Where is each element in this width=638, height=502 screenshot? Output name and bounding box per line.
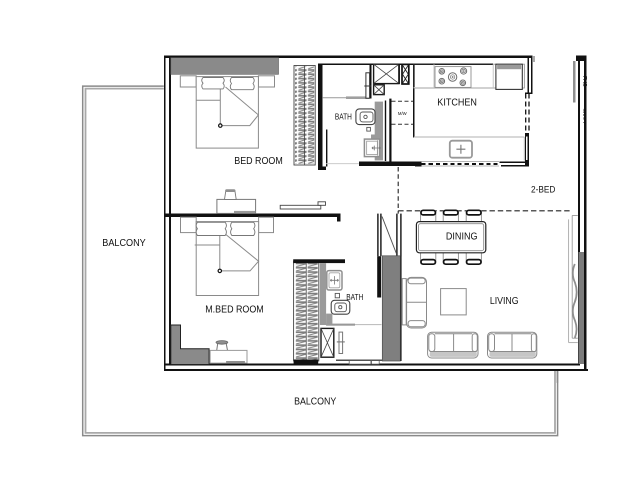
svg-text:BALCONY: BALCONY bbox=[294, 397, 337, 408]
svg-text:M/W: M/W bbox=[398, 111, 407, 116]
svg-text:M.BED ROOM: M.BED ROOM bbox=[205, 303, 264, 315]
svg-text:SHAFT: SHAFT bbox=[581, 109, 587, 125]
svg-text:BALCONY: BALCONY bbox=[102, 238, 146, 249]
svg-text:BED ROOM: BED ROOM bbox=[234, 155, 283, 167]
svg-text:LIVING: LIVING bbox=[490, 296, 519, 307]
svg-text:DINING: DINING bbox=[446, 232, 478, 243]
svg-text:BATH: BATH bbox=[335, 113, 352, 122]
svg-text:2-BED: 2-BED bbox=[531, 185, 555, 195]
svg-text:BATH: BATH bbox=[346, 293, 363, 302]
svg-text:KITCHEN: KITCHEN bbox=[437, 97, 477, 108]
svg-text:FHC: FHC bbox=[581, 76, 587, 87]
